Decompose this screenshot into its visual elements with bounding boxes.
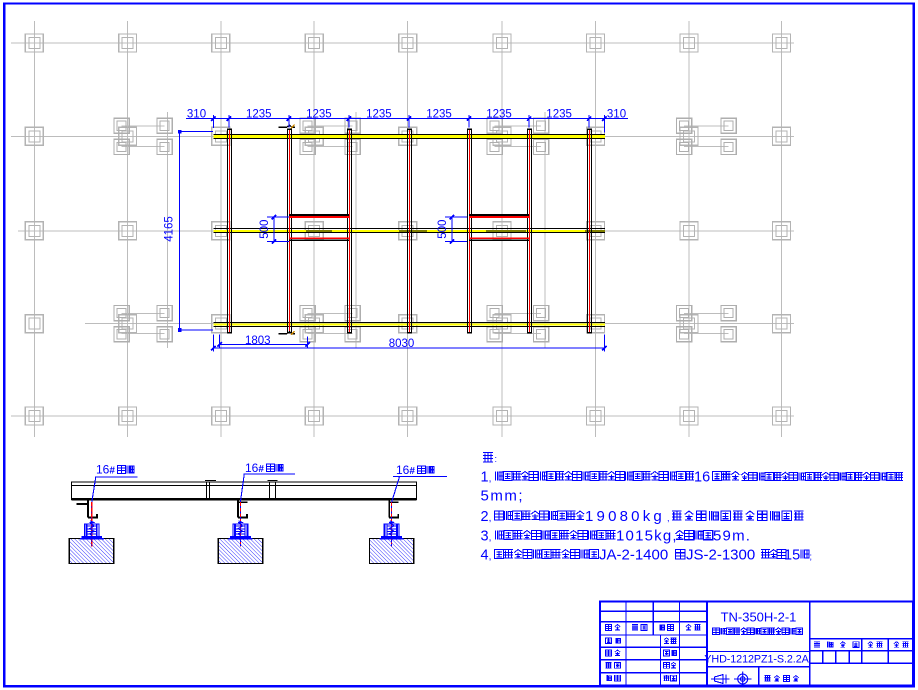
svg-text:1803: 1803 bbox=[245, 335, 271, 347]
svg-text:500: 500 bbox=[437, 220, 449, 239]
svg-text::: : bbox=[495, 454, 498, 464]
svg-text:1235: 1235 bbox=[306, 108, 332, 120]
svg-text:1235: 1235 bbox=[546, 108, 572, 120]
svg-text:16: 16 bbox=[694, 470, 710, 486]
svg-text:310: 310 bbox=[607, 108, 626, 120]
svg-text:5mm;: 5mm; bbox=[481, 488, 525, 505]
svg-text:310: 310 bbox=[187, 108, 206, 120]
svg-text:4165: 4165 bbox=[164, 216, 176, 242]
svg-text:15: 15 bbox=[784, 548, 800, 564]
svg-text:JS-2-1300: JS-2-1300 bbox=[686, 547, 755, 564]
svg-text:1235: 1235 bbox=[366, 108, 392, 120]
svg-text:16#: 16# bbox=[96, 463, 115, 477]
svg-text:YHD-1212PZ1-S.2.2A: YHD-1212PZ1-S.2.2A bbox=[704, 653, 809, 665]
svg-text:59m.: 59m. bbox=[713, 528, 751, 545]
svg-text:1235: 1235 bbox=[246, 108, 272, 120]
svg-text:1235: 1235 bbox=[486, 108, 512, 120]
svg-text:1235: 1235 bbox=[426, 108, 452, 120]
svg-text:;: ; bbox=[810, 552, 813, 562]
svg-text:1015kg,: 1015kg, bbox=[616, 528, 678, 545]
svg-text:JA-2-1400: JA-2-1400 bbox=[599, 547, 668, 564]
svg-text:TN-350H-2-1: TN-350H-2-1 bbox=[721, 610, 797, 625]
svg-text:8030: 8030 bbox=[389, 338, 415, 350]
svg-text:19080kg: 19080kg bbox=[585, 508, 665, 525]
svg-text:16#: 16# bbox=[396, 463, 415, 477]
svg-text:500: 500 bbox=[259, 220, 271, 239]
svg-text:,: , bbox=[667, 513, 670, 523]
svg-text:16#: 16# bbox=[245, 461, 264, 475]
